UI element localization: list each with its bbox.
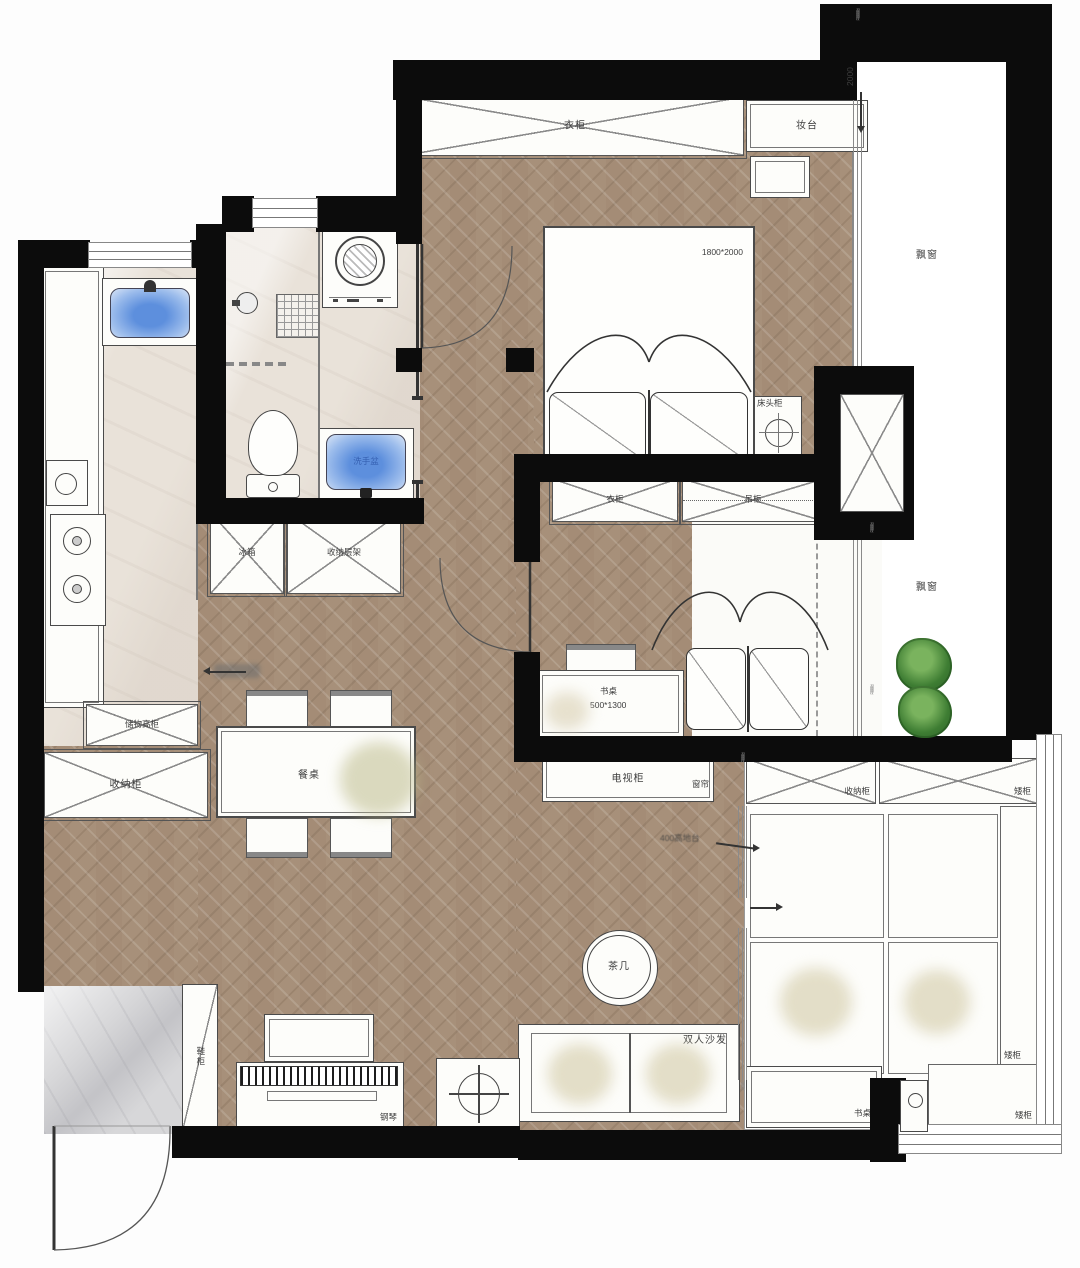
second-bed-pillow-left: [686, 648, 746, 730]
washbasin-label: 洗手盆: [353, 457, 379, 467]
plant-icon: [896, 638, 952, 692]
entry-door: [46, 1124, 176, 1256]
master-pillow-left: [549, 392, 646, 462]
double-sofa-label: 双人沙发: [683, 1035, 727, 1047]
tatami-panel: [750, 814, 884, 938]
fridge: 冰箱: [210, 512, 284, 594]
piano: 钢琴: [236, 1062, 404, 1128]
second-bedroom-door: [436, 558, 532, 656]
washbasin-faucet: [360, 488, 372, 498]
second-bed-canopy: [648, 572, 832, 654]
wall: [196, 224, 226, 524]
curtain-squiggle-icon: ≈≈≈≈: [862, 522, 876, 530]
bay-window-label-bottom: 飘窗: [916, 582, 938, 594]
platform-height-note: 400高地台: [660, 834, 700, 844]
second-wardrobe: 衣柜: [552, 478, 678, 522]
vanity-label: 妆台: [796, 120, 818, 132]
shower-drain-grid: [276, 294, 320, 338]
low-cabinet-column: 矮柜: [1000, 806, 1038, 1066]
note-arrow-head: [199, 667, 210, 675]
second-wardrobe-label: 衣柜: [606, 495, 623, 505]
render-blur: [904, 970, 970, 1034]
wall: [316, 196, 422, 232]
plant-icon: [898, 686, 952, 738]
tatami-desk: 书桌: [746, 1066, 882, 1128]
shower-arm: [232, 300, 240, 306]
bay-window-glazing-top: [853, 100, 862, 368]
master-pillow-right: [650, 392, 748, 462]
floor-plan: 衣柜 妆台 1800*2000 床头柜 飘窗 飘窗 ≈≈≈≈≈ 2000 ≈≈≈…: [0, 0, 1080, 1268]
tall-storage-label: 储物高柜: [125, 720, 159, 730]
door-jamb: [412, 396, 423, 400]
render-blur: [548, 1044, 612, 1104]
piano-bench: [264, 1014, 374, 1062]
fridge-label: 冰箱: [238, 548, 255, 558]
curtain-squiggle-icon: ≈≈≈≈≈: [848, 8, 862, 18]
kitchen-window: [88, 242, 192, 268]
hanging-cabinet-label: 吊柜: [744, 495, 761, 505]
toilet-bowl: [248, 410, 298, 476]
tea-table: 茶几: [582, 930, 658, 1006]
bay-window-label-top: 飘窗: [916, 250, 938, 262]
wall: [514, 482, 540, 562]
shoe-cabinet-label: 鞋柜: [195, 1047, 205, 1068]
tv-cabinet-label: 电视柜: [612, 773, 645, 785]
kitchen-sink: [110, 288, 190, 338]
dining-table-label: 餐桌: [298, 770, 320, 782]
tv-cabinet: 电视柜: [542, 756, 714, 802]
bay-window-glazing-bottom: [853, 538, 862, 736]
stove: [50, 514, 106, 626]
toilet-tank: [246, 474, 300, 498]
dining-chair: [246, 690, 308, 730]
second-bed-center-line: [747, 646, 749, 732]
bedside-table-label: 床头柜: [757, 399, 783, 409]
dining-chair: [330, 690, 392, 730]
hanging-cabinet: 吊柜: [682, 478, 824, 522]
master-bedroom-door: [420, 244, 516, 352]
wall: [1006, 4, 1052, 740]
dim-arrow-head: [857, 126, 865, 137]
floor-lamp-table: [436, 1058, 520, 1128]
dining-chair: [330, 818, 392, 858]
wall: [18, 240, 90, 268]
second-bed-pillow-right: [749, 648, 809, 730]
dim-arrow-line: [860, 92, 862, 128]
piano-keys: [240, 1066, 398, 1086]
wall: [18, 240, 44, 992]
tatami-entry-arrow-line: [750, 907, 778, 909]
tatami-partition-lower: [738, 928, 747, 1080]
door-jamb: [412, 480, 423, 484]
tatami-window-right: [1036, 734, 1062, 1154]
tatami-door: [900, 1080, 928, 1132]
render-blur: [646, 1044, 710, 1104]
low-cabinet-column-label: 矮柜: [1004, 1051, 1021, 1061]
wall: [190, 240, 226, 268]
low-cabinet-bottom-label: 矮柜: [1015, 1111, 1032, 1121]
note-arrow-line: [206, 671, 246, 673]
kitchen-faucet: [144, 280, 156, 292]
low-cabinet-top-label: 矮柜: [1014, 787, 1031, 797]
shaft-void: [840, 394, 904, 512]
shower-screen: [226, 362, 286, 366]
prep-sink: [46, 460, 88, 506]
vanity-stool: [750, 156, 810, 198]
wall: [196, 498, 424, 524]
platform-note-arrow: [753, 844, 764, 852]
bay-depth-dimension: 2000: [846, 67, 856, 86]
washbasin: 洗手盆: [326, 434, 406, 490]
master-bed-size: 1800*2000: [702, 248, 743, 258]
wall: [518, 1130, 874, 1160]
low-cabinet-bottom: 矮柜: [928, 1064, 1038, 1128]
vanity-table: 妆台: [746, 100, 868, 152]
tatami-partition-upper: [738, 806, 747, 898]
tea-table-label: 茶几: [608, 961, 630, 973]
storage-shelf: 收纳层架: [287, 512, 401, 594]
master-wardrobe: 衣柜: [406, 96, 744, 156]
piano-label: 钢琴: [380, 1113, 397, 1123]
render-blur: [340, 742, 418, 816]
second-desk-label: 书桌: [600, 687, 617, 697]
curtain-squiggle-icon: ≈≈≈≈: [862, 684, 876, 692]
storage-cabinet-right: 收纳柜: [746, 758, 876, 804]
bathroom-right-wall: [416, 228, 419, 398]
wall: [172, 1126, 520, 1158]
bed-center-line: [648, 390, 650, 464]
wall: [396, 348, 422, 372]
curtain-squiggle-icon: ≈≈≈≈: [733, 1080, 747, 1088]
wall: [222, 196, 254, 232]
entry-floor: [44, 986, 186, 1134]
storage-cabinet-left: 收纳柜: [44, 752, 208, 818]
wall: [506, 348, 534, 372]
wall: [514, 736, 1012, 762]
kitchen-entry-line: [196, 523, 198, 600]
storage-shelf-label: 收纳层架: [327, 548, 361, 558]
bathroom-partition: [318, 230, 320, 498]
tatami-desk-label: 书桌: [854, 1109, 871, 1119]
curtain-label: 窗帘: [692, 780, 709, 790]
storage-cabinet-right-label: 收纳柜: [844, 787, 870, 797]
shoe-cabinet: 鞋柜: [182, 984, 218, 1130]
render-blur: [780, 968, 852, 1036]
render-blur: [545, 692, 589, 730]
dining-chair: [246, 818, 308, 858]
master-bed-drape: [543, 318, 755, 396]
storage-cabinet-left-label: 收纳柜: [110, 779, 143, 791]
wall: [393, 60, 857, 100]
curtain-squiggle-icon: ≈≈≈≈: [733, 752, 747, 760]
tatami-entry-arrow-head: [776, 903, 787, 911]
bathroom-window: [252, 198, 318, 228]
tatami-panel: [888, 814, 998, 938]
washing-machine: [322, 228, 398, 308]
master-wardrobe-label: 衣柜: [564, 120, 586, 132]
second-desk-size: 500*1300: [590, 701, 626, 711]
low-cabinet-top: 矮柜: [879, 758, 1037, 804]
tall-storage-cabinet: 储物高柜: [86, 704, 198, 746]
